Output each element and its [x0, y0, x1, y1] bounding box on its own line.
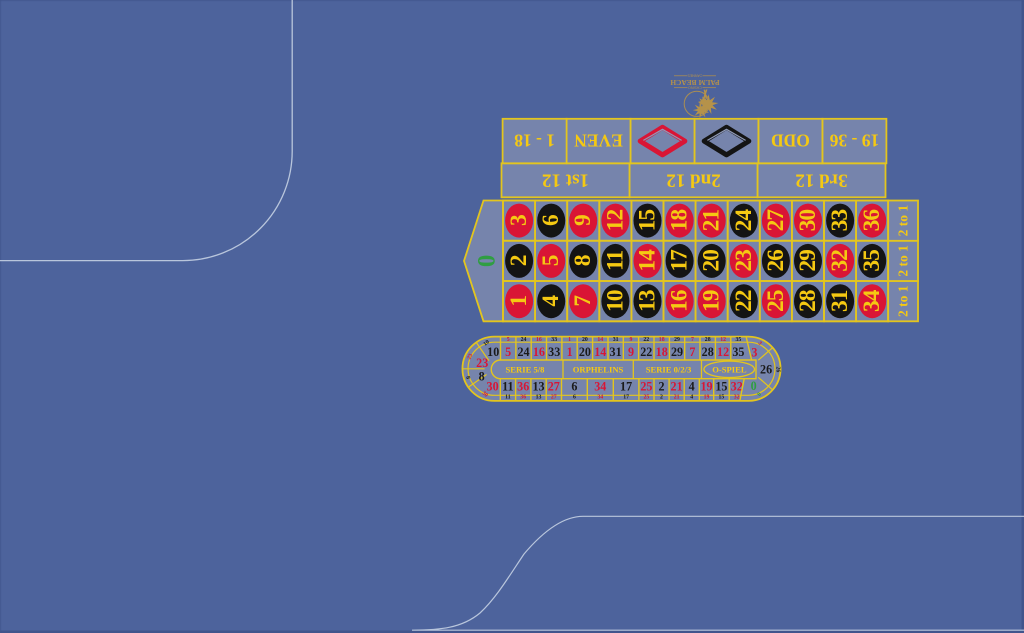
- svg-text:1: 1: [567, 345, 573, 359]
- svg-text:32: 32: [734, 395, 740, 401]
- svg-text:8: 8: [570, 255, 596, 266]
- svg-text:16: 16: [533, 345, 545, 359]
- svg-text:6: 6: [538, 214, 564, 226]
- svg-text:19: 19: [704, 395, 710, 401]
- svg-text:35: 35: [859, 250, 885, 272]
- svg-text:17: 17: [620, 380, 632, 394]
- svg-text:EVEN: EVEN: [574, 131, 623, 151]
- svg-text:7: 7: [570, 295, 596, 307]
- svg-text:20: 20: [582, 337, 588, 343]
- svg-text:10: 10: [602, 290, 628, 312]
- svg-text:8: 8: [479, 370, 485, 384]
- svg-text:CANNES: CANNES: [687, 74, 703, 78]
- svg-text:SERIE 0/2/3: SERIE 0/2/3: [646, 365, 692, 375]
- svg-text:4: 4: [690, 395, 693, 401]
- svg-text:21: 21: [674, 395, 680, 401]
- svg-text:2: 2: [506, 255, 532, 266]
- svg-text:21: 21: [699, 210, 725, 232]
- svg-text:18: 18: [667, 210, 693, 232]
- svg-text:0: 0: [474, 255, 501, 268]
- svg-text:15: 15: [715, 380, 727, 394]
- svg-text:23: 23: [476, 356, 488, 370]
- svg-text:34: 34: [594, 380, 606, 394]
- svg-text:6: 6: [571, 380, 577, 394]
- svg-text:3: 3: [506, 215, 532, 226]
- svg-text:33: 33: [551, 337, 557, 343]
- svg-text:29: 29: [674, 337, 680, 343]
- svg-text:31: 31: [827, 290, 853, 312]
- svg-text:16: 16: [536, 337, 542, 343]
- svg-text:17: 17: [623, 395, 629, 401]
- svg-text:0: 0: [751, 379, 757, 393]
- svg-text:28: 28: [702, 345, 714, 359]
- svg-text:ORPHELINS: ORPHELINS: [573, 365, 624, 375]
- svg-text:2 to 1: 2 to 1: [896, 245, 911, 277]
- svg-text:19: 19: [699, 290, 725, 312]
- svg-text:ODD: ODD: [771, 131, 810, 151]
- svg-text:29: 29: [671, 345, 683, 359]
- svg-text:36: 36: [859, 209, 885, 232]
- svg-text:14: 14: [597, 337, 603, 343]
- svg-text:36: 36: [517, 380, 529, 394]
- svg-text:13: 13: [635, 290, 661, 312]
- svg-text:5: 5: [507, 337, 510, 343]
- svg-text:7: 7: [689, 345, 695, 359]
- svg-text:34: 34: [597, 395, 603, 401]
- svg-text:9: 9: [628, 345, 634, 359]
- svg-text:1 - 18: 1 - 18: [514, 131, 555, 151]
- svg-text:9: 9: [570, 215, 596, 226]
- svg-text:2 to 1: 2 to 1: [896, 205, 911, 237]
- svg-text:3: 3: [751, 345, 757, 359]
- svg-text:2nd 12: 2nd 12: [666, 169, 720, 190]
- svg-text:22: 22: [640, 345, 652, 359]
- svg-text:19 - 36: 19 - 36: [829, 131, 879, 151]
- svg-text:14: 14: [594, 345, 606, 359]
- svg-text:26: 26: [774, 367, 780, 373]
- svg-text:34: 34: [859, 289, 885, 312]
- svg-text:27: 27: [551, 395, 557, 401]
- svg-text:2: 2: [658, 380, 664, 394]
- svg-text:21: 21: [671, 380, 683, 394]
- svg-text:22: 22: [731, 290, 757, 312]
- svg-text:36: 36: [520, 395, 526, 401]
- svg-text:12: 12: [717, 345, 729, 359]
- svg-text:6: 6: [573, 395, 576, 401]
- svg-text:4: 4: [689, 380, 695, 394]
- svg-text:12: 12: [602, 210, 628, 232]
- svg-text:13: 13: [536, 395, 542, 401]
- svg-text:18: 18: [656, 345, 668, 359]
- svg-text:1: 1: [506, 296, 532, 307]
- svg-text:12: 12: [720, 337, 726, 343]
- svg-text:7: 7: [691, 337, 694, 343]
- svg-text:28: 28: [705, 337, 711, 343]
- svg-text:15: 15: [635, 210, 661, 232]
- svg-text:14: 14: [635, 249, 661, 272]
- svg-text:4: 4: [538, 295, 564, 307]
- svg-text:30: 30: [795, 210, 821, 232]
- svg-text:11: 11: [505, 395, 511, 401]
- svg-text:3rd 12: 3rd 12: [795, 169, 847, 190]
- svg-text:19: 19: [700, 380, 712, 394]
- svg-text:26: 26: [763, 249, 789, 272]
- svg-text:9: 9: [630, 337, 633, 343]
- svg-text:22: 22: [643, 337, 649, 343]
- svg-text:SERIE 5/8: SERIE 5/8: [506, 365, 546, 375]
- svg-text:1st 12: 1st 12: [542, 169, 589, 190]
- svg-text:5: 5: [538, 255, 564, 266]
- svg-text:5: 5: [505, 345, 511, 359]
- svg-text:15: 15: [719, 395, 725, 401]
- svg-text:O-SPIEL: O-SPIEL: [712, 365, 747, 375]
- svg-text:25: 25: [644, 395, 650, 401]
- svg-text:27: 27: [763, 209, 789, 232]
- svg-text:31: 31: [610, 345, 622, 359]
- svg-text:25: 25: [763, 290, 789, 312]
- svg-text:20: 20: [699, 250, 725, 272]
- svg-text:24: 24: [517, 345, 529, 359]
- svg-text:29: 29: [795, 250, 821, 272]
- svg-text:23: 23: [731, 250, 757, 272]
- svg-text:11: 11: [602, 251, 628, 271]
- svg-text:35: 35: [736, 337, 742, 343]
- svg-text:1: 1: [568, 337, 571, 343]
- svg-text:32: 32: [827, 250, 853, 272]
- svg-text:24: 24: [731, 209, 757, 232]
- svg-text:25: 25: [640, 380, 652, 394]
- svg-text:24: 24: [521, 337, 527, 343]
- svg-text:33: 33: [827, 210, 853, 232]
- svg-text:33: 33: [548, 345, 560, 359]
- svg-text:18: 18: [659, 337, 665, 343]
- svg-text:28: 28: [795, 290, 821, 312]
- svg-text:30: 30: [487, 379, 499, 393]
- svg-text:20: 20: [579, 345, 591, 359]
- svg-text:26: 26: [760, 363, 772, 377]
- svg-text:16: 16: [667, 289, 693, 312]
- svg-text:17: 17: [667, 249, 693, 272]
- svg-text:13: 13: [532, 380, 544, 394]
- svg-text:27: 27: [548, 380, 560, 394]
- svg-text:31: 31: [613, 337, 619, 343]
- svg-text:10: 10: [487, 345, 499, 359]
- svg-text:11: 11: [502, 380, 513, 394]
- svg-text:35: 35: [732, 345, 744, 359]
- svg-text:2: 2: [660, 395, 663, 401]
- svg-text:CASINO: CASINO: [688, 85, 702, 89]
- svg-text:2 to 1: 2 to 1: [896, 285, 911, 317]
